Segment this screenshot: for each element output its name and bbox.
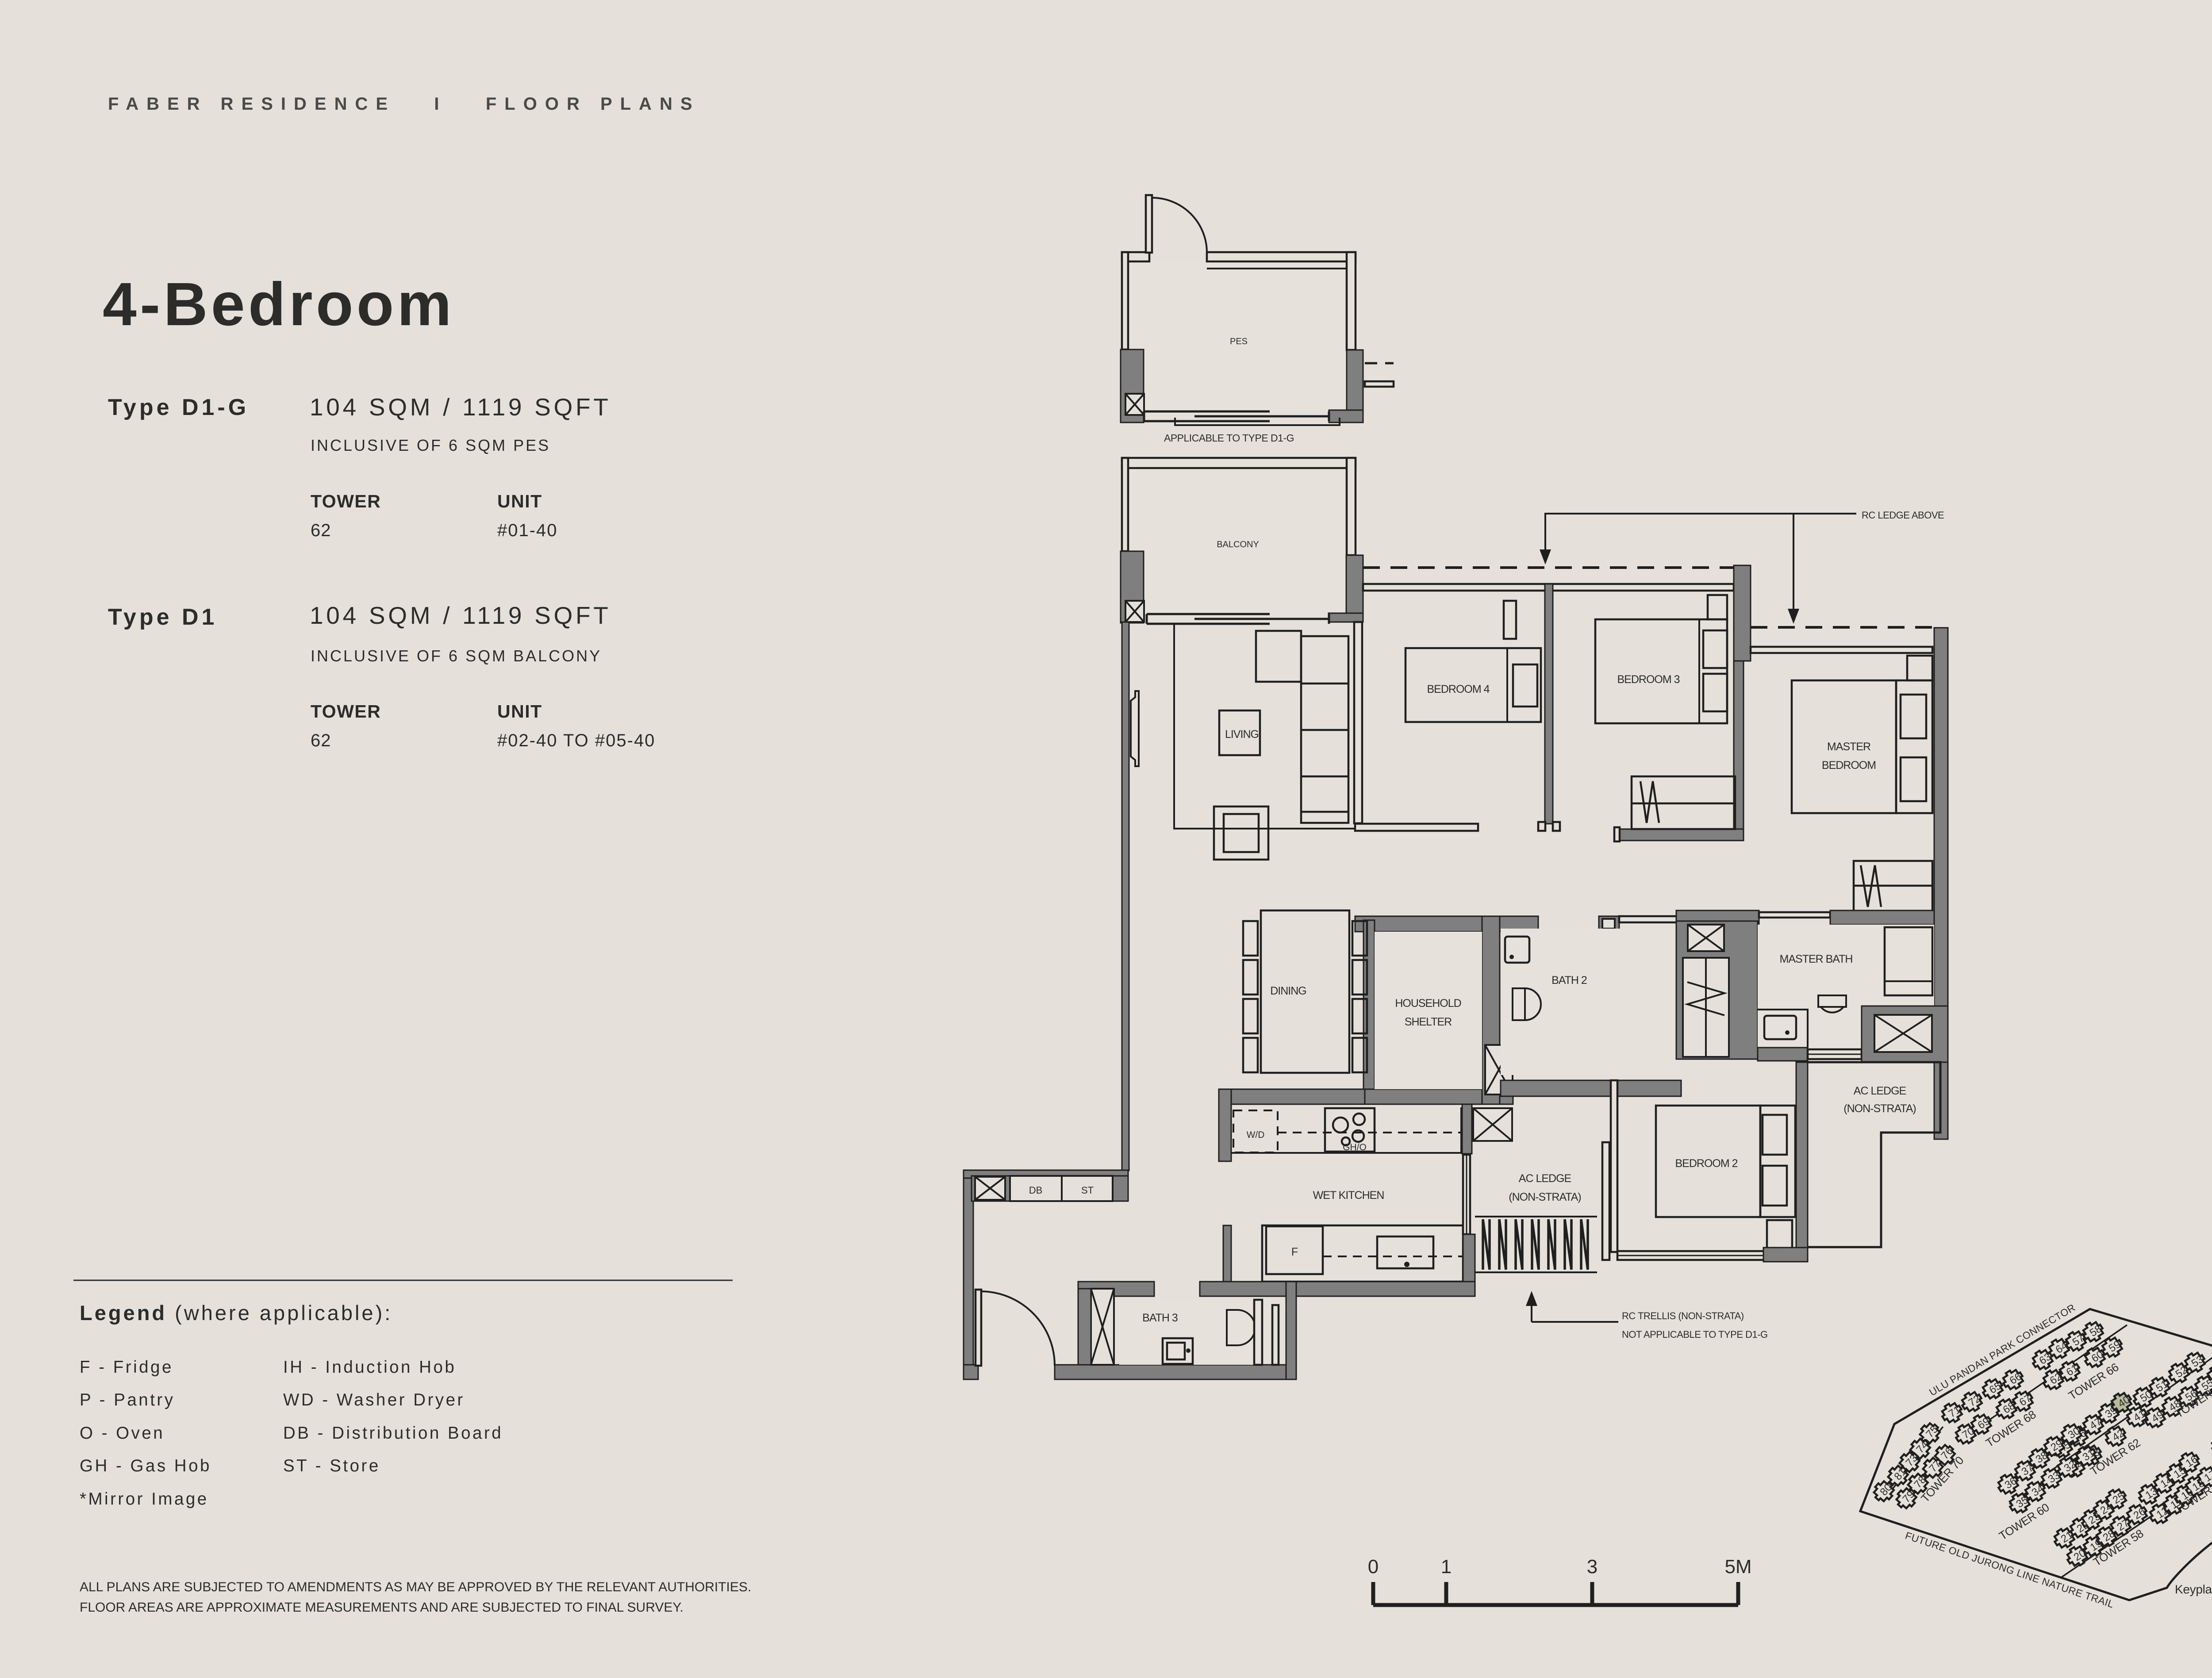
svg-text:0: 0 <box>1368 1556 1379 1578</box>
svg-text:PES: PES <box>1230 337 1248 346</box>
svg-text:104 SQM / 1119 SQFT: 104 SQM / 1119 SQFT <box>310 393 611 421</box>
svg-text:RC TRELLIS (NON-STRATA): RC TRELLIS (NON-STRATA) <box>1622 1310 1744 1321</box>
svg-text:AC LEDGE: AC LEDGE <box>1519 1172 1571 1185</box>
svg-text:UNIT: UNIT <box>497 491 542 511</box>
svg-text:AC LEDGE: AC LEDGE <box>1854 1085 1906 1097</box>
svg-text:IH - Induction Hob: IH - Induction Hob <box>283 1358 456 1377</box>
svg-text:W/D: W/D <box>1247 1130 1265 1140</box>
svg-text:WET KITCHEN: WET KITCHEN <box>1313 1189 1384 1202</box>
svg-text:APPLICABLE TO TYPE D1-G: APPLICABLE TO TYPE D1-G <box>1164 432 1294 444</box>
svg-text:4-Bedroom: 4-Bedroom <box>103 270 455 338</box>
svg-text:Type D1-G: Type D1-G <box>108 395 249 420</box>
svg-text:TOWER: TOWER <box>311 491 381 511</box>
svg-text:Type D1: Type D1 <box>108 604 217 630</box>
svg-text:ALL PLANS ARE SUBJECTED TO AME: ALL PLANS ARE SUBJECTED TO AMENDMENTS AS… <box>80 1580 751 1594</box>
svg-text:ST - Store: ST - Store <box>283 1456 380 1475</box>
svg-text:62: 62 <box>311 521 331 540</box>
svg-text:WD - Washer Dryer: WD - Washer Dryer <box>283 1390 465 1409</box>
svg-text:BATH 3: BATH 3 <box>1142 1312 1178 1324</box>
svg-text:3: 3 <box>1587 1556 1598 1578</box>
svg-text:DB - Distribution Board: DB - Distribution Board <box>283 1424 503 1443</box>
svg-text:LIVING: LIVING <box>1225 728 1259 741</box>
svg-text:BATH 2: BATH 2 <box>1551 974 1587 987</box>
svg-text:P - Pantry: P - Pantry <box>80 1390 175 1409</box>
svg-text:62: 62 <box>311 731 331 750</box>
svg-text:Keyplan is not drawn to scale: Keyplan is not drawn to scale <box>2175 1582 2212 1596</box>
svg-text:ST: ST <box>1081 1185 1094 1196</box>
svg-text:INCLUSIVE OF 6 SQM PES: INCLUSIVE OF 6 SQM PES <box>311 436 550 454</box>
svg-text:BEDROOM 3: BEDROOM 3 <box>1617 673 1679 686</box>
svg-text:1: 1 <box>1441 1556 1452 1578</box>
svg-text:BEDROOM 4: BEDROOM 4 <box>1427 683 1490 695</box>
svg-text:NOT APPLICABLE TO TYPE D1-G: NOT APPLICABLE TO TYPE D1-G <box>1622 1329 1768 1340</box>
svg-text:GH - Gas Hob: GH - Gas Hob <box>80 1456 211 1475</box>
svg-text:Legend (where applicable):: Legend (where applicable): <box>80 1301 392 1325</box>
svg-text:FABER RESIDENCE I FLOOR PL: FABER RESIDENCE I FLOOR PLANS <box>108 94 700 114</box>
svg-text:GH/O: GH/O <box>1343 1142 1367 1152</box>
svg-text:DB: DB <box>1029 1185 1043 1196</box>
svg-text:(NON-STRATA): (NON-STRATA) <box>1509 1191 1581 1203</box>
svg-text:MASTER BATH: MASTER BATH <box>1780 953 1853 965</box>
svg-text:5M: 5M <box>1724 1556 1751 1578</box>
svg-text:104 SQM / 1119 SQFT: 104 SQM / 1119 SQFT <box>310 602 611 629</box>
svg-text:RC LEDGE ABOVE: RC LEDGE ABOVE <box>1862 510 1944 521</box>
svg-text:(NON-STRATA): (NON-STRATA) <box>1843 1102 1916 1115</box>
svg-text:BEDROOM 2: BEDROOM 2 <box>1675 1157 1737 1170</box>
svg-text:INCLUSIVE OF 6 SQM BALCONY: INCLUSIVE OF 6 SQM BALCONY <box>311 647 602 665</box>
svg-text:HOUSEHOLD: HOUSEHOLD <box>1395 997 1461 1010</box>
svg-text:DINING: DINING <box>1270 985 1306 997</box>
svg-text:FLOOR AREAS ARE APPROXIMATE ME: FLOOR AREAS ARE APPROXIMATE MEASUREMENTS… <box>80 1600 684 1615</box>
svg-text:*Mirror Image: *Mirror Image <box>80 1490 209 1509</box>
svg-text:SHELTER: SHELTER <box>1405 1016 1452 1028</box>
svg-text:O - Oven: O - Oven <box>80 1424 165 1443</box>
svg-text:F: F <box>1291 1246 1298 1258</box>
svg-text:UNIT: UNIT <box>497 701 542 722</box>
svg-text:#01-40: #01-40 <box>497 521 558 540</box>
svg-text:F - Fridge: F - Fridge <box>80 1358 173 1377</box>
svg-text:TOWER: TOWER <box>311 701 381 722</box>
svg-text:#02-40 TO #05-40: #02-40 TO #05-40 <box>497 731 655 750</box>
svg-text:BALCONY: BALCONY <box>1217 540 1259 549</box>
svg-text:BEDROOM: BEDROOM <box>1822 759 1876 772</box>
svg-text:MASTER: MASTER <box>1827 741 1870 753</box>
